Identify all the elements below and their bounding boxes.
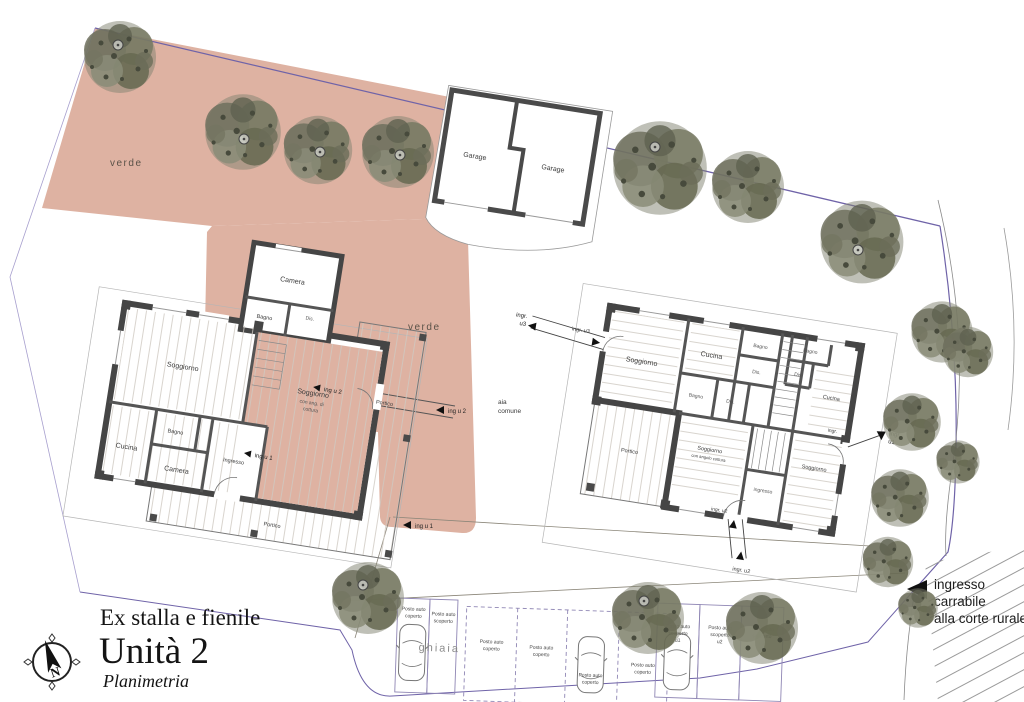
svg-text:comune: comune [498, 408, 522, 415]
svg-text:aia: aia [498, 399, 507, 406]
svg-text:coperto: coperto [533, 652, 550, 659]
verde-top-label: verde [110, 158, 143, 169]
svg-text:ing u 1: ing u 1 [415, 524, 434, 530]
site-plan-drawing: Garage Garage [0, 0, 1024, 702]
svg-text:Posto auto: Posto auto [578, 672, 602, 679]
svg-text:u2: u2 [717, 639, 723, 645]
north-compass: N [24, 634, 80, 690]
svg-text:coperto: coperto [634, 669, 651, 676]
drawing-title: Planimetria [102, 671, 189, 691]
right-building: Soggiorno Cucina Bagno Dis. Bagno Dis. C… [482, 274, 917, 595]
svg-text:Posto auto: Posto auto [431, 611, 455, 618]
svg-text:ingr. u3: ingr. u3 [571, 326, 590, 335]
unit-title: Unità 2 [99, 631, 209, 672]
site-plan-canvas: Garage Garage [0, 0, 1024, 702]
project-title: Ex stalla e fienile [100, 605, 260, 630]
svg-text:Posto auto: Posto auto [402, 606, 426, 613]
svg-text:ghiaia: ghiaia [418, 642, 460, 655]
svg-text:scoperto: scoperto [434, 618, 454, 625]
verde-mid-label: verde [408, 322, 441, 333]
svg-text:ingr.: ingr. [516, 312, 528, 320]
right-entrance-u3: ingr. u3 ingr. u3 [513, 312, 607, 349]
svg-text:Posto auto: Posto auto [479, 639, 503, 646]
svg-text:ing u 2: ing u 2 [448, 409, 467, 415]
svg-text:Posto auto: Posto auto [631, 662, 655, 669]
parking-row: Posto auto coperto Posto auto scoperto g… [395, 594, 784, 702]
svg-text:ingresso: ingresso [934, 577, 985, 592]
aia-comune-label: aia comune [498, 399, 522, 415]
garage-building: Garage Garage [423, 85, 613, 264]
svg-text:Posto auto: Posto auto [529, 645, 553, 652]
svg-text:alla corte rurale: alla corte rurale [934, 611, 1024, 626]
svg-text:coperto: coperto [405, 613, 422, 620]
title-block: Ex stalla e fienile Unità 2 Planimetria [99, 605, 260, 691]
svg-text:coperto: coperto [483, 646, 500, 653]
svg-text:u3: u3 [519, 321, 527, 328]
svg-text:coperto: coperto [582, 679, 599, 686]
svg-text:carrabile: carrabile [934, 594, 986, 609]
